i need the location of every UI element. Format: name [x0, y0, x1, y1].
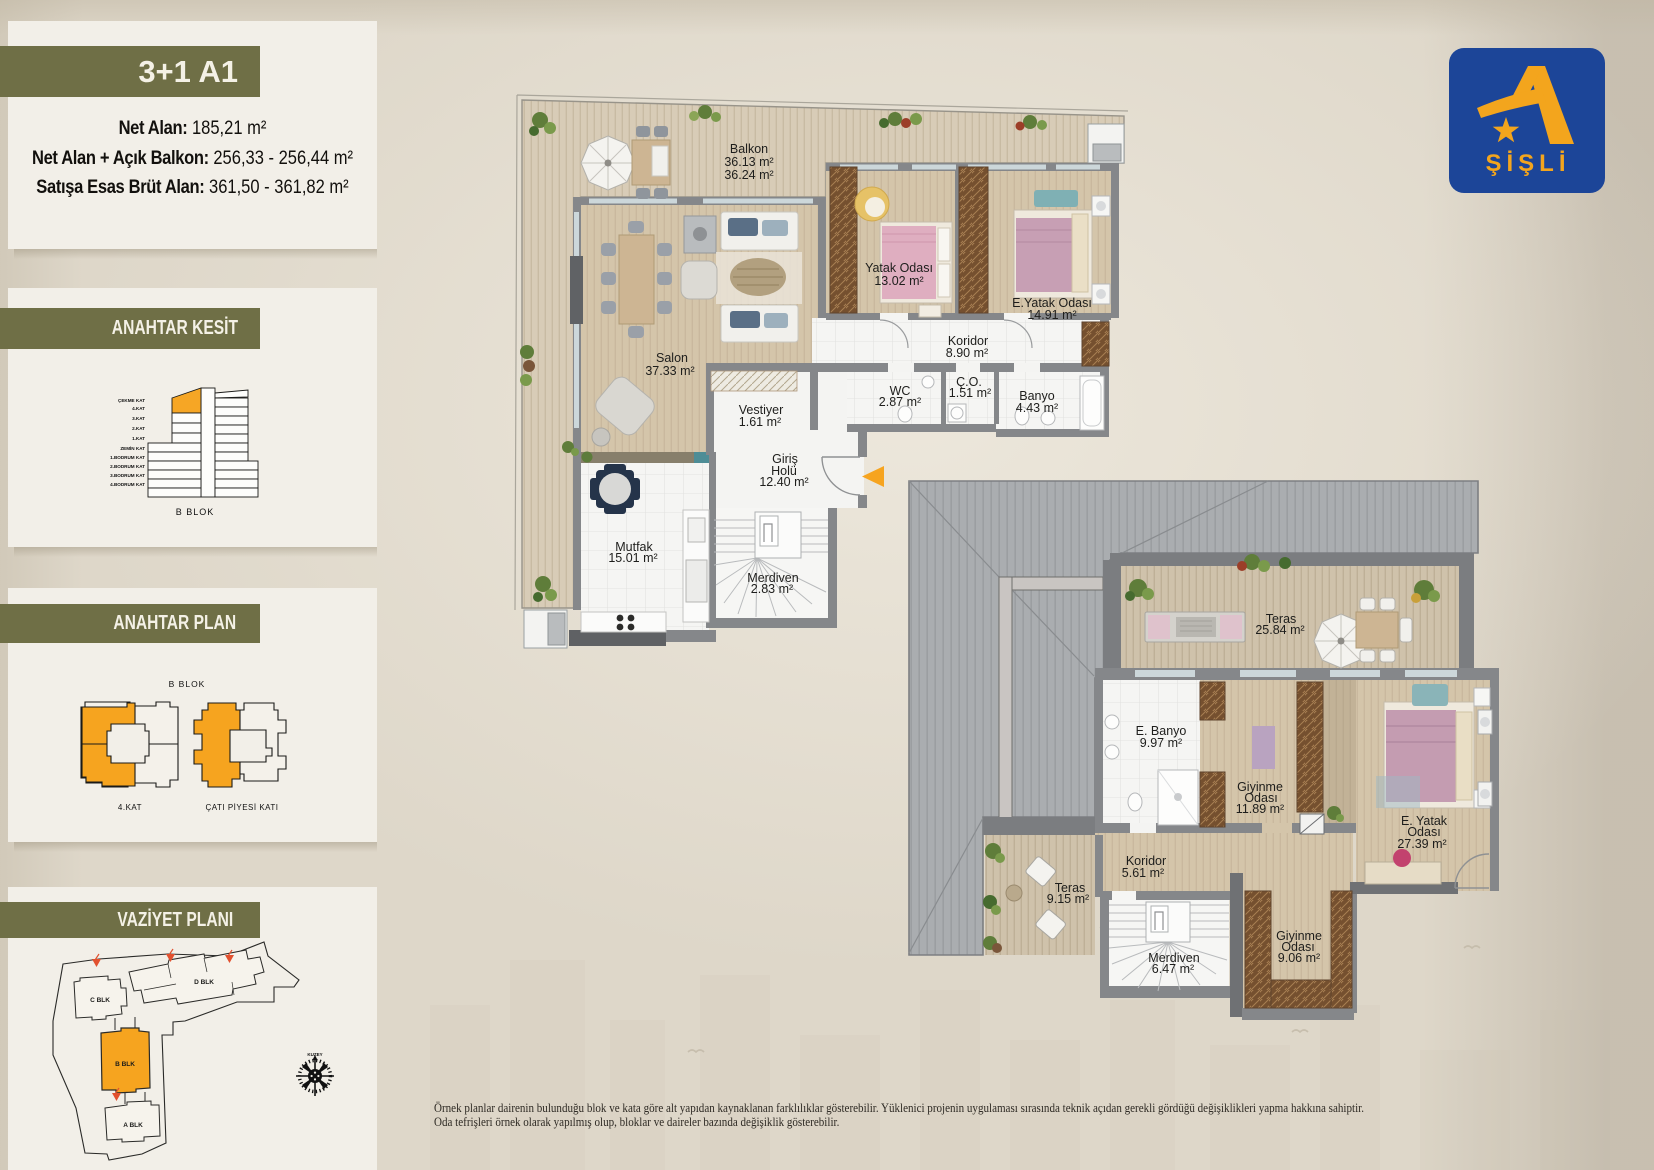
svg-text:9.97 m²: 9.97 m²	[1140, 736, 1182, 750]
svg-text:5.61 m²: 5.61 m²	[1122, 866, 1164, 880]
svg-text:14.91 m²: 14.91 m²	[1027, 308, 1076, 322]
svg-text:1.61 m²: 1.61 m²	[739, 415, 781, 429]
svg-text:1.51 m²: 1.51 m²	[949, 386, 991, 400]
svg-text:36.13 m²: 36.13 m²	[724, 155, 773, 169]
svg-text:36.24 m²: 36.24 m²	[724, 168, 773, 182]
svg-text:9.06 m²: 9.06 m²	[1278, 951, 1320, 965]
svg-text:8.90 m²: 8.90 m²	[946, 346, 988, 360]
svg-text:4.43 m²: 4.43 m²	[1016, 401, 1058, 415]
svg-text:25.84 m²: 25.84 m²	[1255, 623, 1304, 637]
svg-text:12.40 m²: 12.40 m²	[759, 475, 808, 489]
svg-text:Balkon: Balkon	[730, 142, 768, 156]
svg-text:2.87 m²: 2.87 m²	[879, 395, 921, 409]
svg-text:27.39 m²: 27.39 m²	[1397, 837, 1446, 851]
svg-text:6.47 m²: 6.47 m²	[1152, 962, 1194, 976]
svg-text:Salon: Salon	[656, 351, 688, 365]
svg-text:15.01 m²: 15.01 m²	[608, 551, 657, 565]
svg-text:2.83 m²: 2.83 m²	[751, 582, 793, 596]
svg-text:11.89 m²: 11.89 m²	[1236, 802, 1284, 816]
svg-text:13.02 m²: 13.02 m²	[874, 274, 923, 288]
svg-text:9.15 m²: 9.15 m²	[1047, 892, 1089, 906]
svg-text:37.33 m²: 37.33 m²	[645, 364, 694, 378]
svg-text:Yatak Odası: Yatak Odası	[865, 261, 933, 275]
